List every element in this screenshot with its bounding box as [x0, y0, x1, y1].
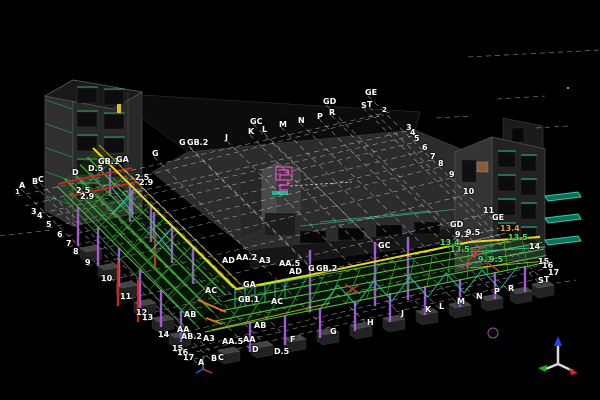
- core-side-wall[interactable]: [240, 165, 262, 240]
- view-axes-icon: [538, 336, 578, 375]
- penthouse-window: [512, 128, 524, 142]
- line: [468, 50, 600, 57]
- cad-3d-viewport[interactable]: GCJKLMNPRGDGEST234567891011GEGD9.19.513.…: [0, 0, 600, 400]
- model-scene[interactable]: [0, 0, 600, 400]
- axis-y-arrow: [538, 365, 547, 372]
- line: [436, 116, 472, 118]
- model-origin-marker: [196, 357, 212, 373]
- right-tower-balconies[interactable]: [545, 192, 581, 245]
- grid-dot: [567, 87, 569, 89]
- axis-x-arrow: [569, 368, 578, 375]
- reference-circle: [488, 328, 498, 338]
- line: [556, 280, 576, 283]
- core-base-shadow: [265, 213, 295, 235]
- line: [0, 230, 52, 236]
- shaft-equipment: [117, 104, 121, 113]
- line: [497, 96, 545, 99]
- axis-z-arrow: [554, 336, 562, 346]
